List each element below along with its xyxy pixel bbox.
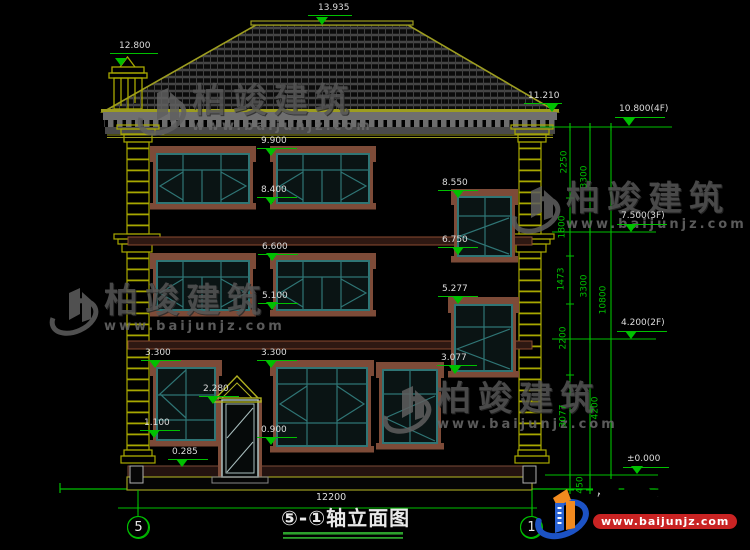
- elevation-value-label: 0.285: [172, 448, 198, 457]
- elevation-value-label: 8.550: [442, 179, 468, 188]
- elevation-marker-triangle-icon: [265, 197, 277, 205]
- elevation-value-label: 4.200(2F): [621, 319, 665, 328]
- elevation-marker-triangle-icon: [316, 17, 328, 25]
- elevation-value-label: 6.750: [442, 236, 468, 245]
- dimension-value-label: 2250: [561, 151, 570, 174]
- elevation-marker-line: [199, 396, 239, 397]
- dimension-value-label: 3077: [560, 405, 569, 428]
- elevation-marker-line: [140, 430, 180, 431]
- axis-number: 5: [134, 520, 142, 535]
- elevation-marker-line: [257, 437, 297, 438]
- elevation-drawing-canvas: 柏竣建筑www.baijunjz.com柏竣建筑www.baijunjz.com…: [0, 0, 750, 550]
- elevation-marker-triangle-icon: [449, 366, 461, 374]
- drawing-title: ⑤-①轴立面图: [281, 508, 410, 528]
- elevation-marker-triangle-icon: [266, 253, 278, 261]
- elevation-value-label: 3.077: [441, 354, 467, 363]
- elevation-marker-triangle-icon: [631, 466, 643, 474]
- grid-bubble-axis-5: 5: [127, 516, 150, 539]
- elevation-marker-line: [141, 360, 181, 361]
- dimension-value-label: 1800: [559, 216, 568, 239]
- elevation-marker-triangle-icon: [623, 118, 635, 126]
- annotation-layer: 13.93512.80011.2109.9008.4008.5506.6006.…: [0, 0, 750, 550]
- elevation-marker-line: [110, 53, 158, 54]
- elevation-value-label: 6.600: [262, 243, 288, 252]
- elevation-marker-line: [623, 467, 669, 468]
- elevation-marker-triangle-icon: [625, 331, 637, 339]
- elevation-marker-triangle-icon: [546, 104, 558, 112]
- elevation-marker-triangle-icon: [115, 58, 127, 66]
- brand-logo: 柏竣建筑 www.baijunjz.com: [534, 485, 737, 543]
- elevation-value-label: 7.500(3F): [621, 212, 665, 221]
- elevation-value-label: 5.277: [442, 285, 468, 294]
- elevation-marker-triangle-icon: [452, 247, 464, 255]
- dimension-value-label: 4200: [592, 397, 601, 420]
- elevation-marker-triangle-icon: [176, 459, 188, 467]
- dimension-value-label: 1473: [558, 268, 567, 291]
- elevation-marker-line: [168, 459, 208, 460]
- elevation-marker-triangle-icon: [265, 360, 277, 368]
- elevation-value-label: 10.800(4F): [619, 105, 668, 114]
- overall-width-dimension: 12200: [316, 492, 346, 503]
- elevation-value-label: 2.280: [203, 385, 229, 394]
- elevation-marker-triangle-icon: [265, 148, 277, 156]
- dimension-value-label: 3300: [581, 166, 590, 189]
- elevation-marker-line: [258, 254, 298, 255]
- elevation-marker-triangle-icon: [266, 302, 278, 310]
- elevation-value-label: 1.100: [144, 419, 170, 428]
- elevation-marker-line: [308, 15, 352, 16]
- elevation-marker-line: [257, 360, 297, 361]
- brand-url: www.baijunjz.com: [593, 514, 737, 529]
- elevation-marker-triangle-icon: [148, 430, 160, 438]
- elevation-value-label: 5.100: [262, 292, 288, 301]
- dimension-value-label: 3300: [581, 275, 590, 298]
- brand-name: 柏竣建筑: [593, 485, 737, 512]
- elevation-marker-triangle-icon: [207, 396, 219, 404]
- elevation-value-label: ±0.000: [627, 455, 660, 464]
- elevation-marker-triangle-icon: [265, 437, 277, 445]
- elevation-value-label: 13.935: [318, 4, 350, 13]
- elevation-value-label: 11.210: [528, 92, 560, 101]
- elevation-marker-triangle-icon: [625, 224, 637, 232]
- elevation-marker-line: [257, 197, 297, 198]
- dimension-value-label: 10800: [600, 286, 609, 315]
- brand-logo-icon: [534, 485, 590, 543]
- elevation-value-label: 3.300: [261, 349, 287, 358]
- elevation-marker-line: [257, 148, 297, 149]
- elevation-value-label: 8.400: [261, 186, 287, 195]
- elevation-value-label: 12.800: [119, 42, 151, 51]
- elevation-marker-triangle-icon: [452, 296, 464, 304]
- elevation-value-label: 0.900: [261, 426, 287, 435]
- elevation-value-label: 3.300: [145, 349, 171, 358]
- elevation-marker-line: [258, 303, 298, 304]
- elevation-value-label: 9.900: [261, 137, 287, 146]
- dimension-value-label: 2200: [560, 327, 569, 350]
- elevation-marker-triangle-icon: [149, 360, 161, 368]
- elevation-marker-triangle-icon: [452, 190, 464, 198]
